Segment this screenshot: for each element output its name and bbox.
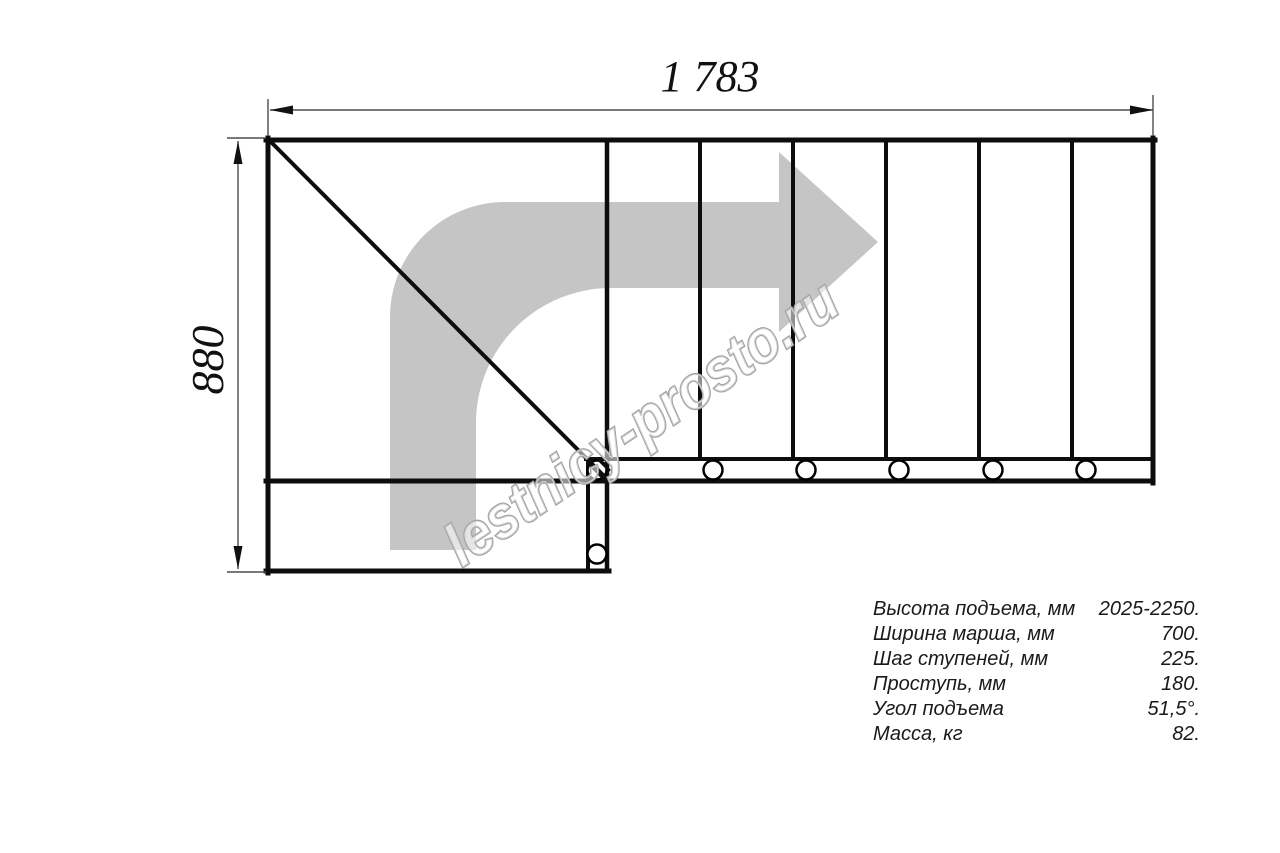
spec-label: Шаг ступеней, мм [873, 647, 1048, 672]
spec-label: Высота подъема, мм [873, 597, 1075, 622]
spec-label: Проступь, мм [873, 672, 1006, 697]
spec-label: Угол подъема [873, 697, 1004, 722]
baluster-markers [588, 461, 1096, 564]
spec-row-tread: Проступь, мм 180. [873, 672, 1200, 697]
spec-row-climb-angle: Угол подъема 51,5°. [873, 697, 1200, 722]
dimension-lines [227, 95, 1153, 572]
spec-row-flight-width: Ширина марша, мм 700. [873, 622, 1200, 647]
spec-label: Масса, кг [873, 722, 963, 747]
dimension-arrowheads [234, 106, 1154, 570]
staircase-drawing: lestnicy-prosto.ru 1 783 880 Высота подъ… [0, 0, 1280, 853]
specs-table: Высота подъема, мм 2025-2250. Ширина мар… [873, 597, 1200, 747]
spec-value: 700. [1161, 622, 1200, 647]
spec-row-mass: Масса, кг 82. [873, 722, 1200, 747]
spec-value: 180. [1161, 672, 1200, 697]
dimension-height-label: 880 [183, 290, 233, 430]
spec-value: 51,5°. [1148, 697, 1200, 722]
spec-row-step-pitch: Шаг ступеней, мм 225. [873, 647, 1200, 672]
spec-label: Ширина марша, мм [873, 622, 1055, 647]
dimension-width-label: 1 783 [610, 54, 810, 100]
spec-row-rise-height: Высота подъема, мм 2025-2250. [873, 597, 1200, 622]
spec-value: 225. [1161, 647, 1200, 672]
spec-value: 82. [1172, 722, 1200, 747]
spec-value: 2025-2250. [1099, 597, 1200, 622]
